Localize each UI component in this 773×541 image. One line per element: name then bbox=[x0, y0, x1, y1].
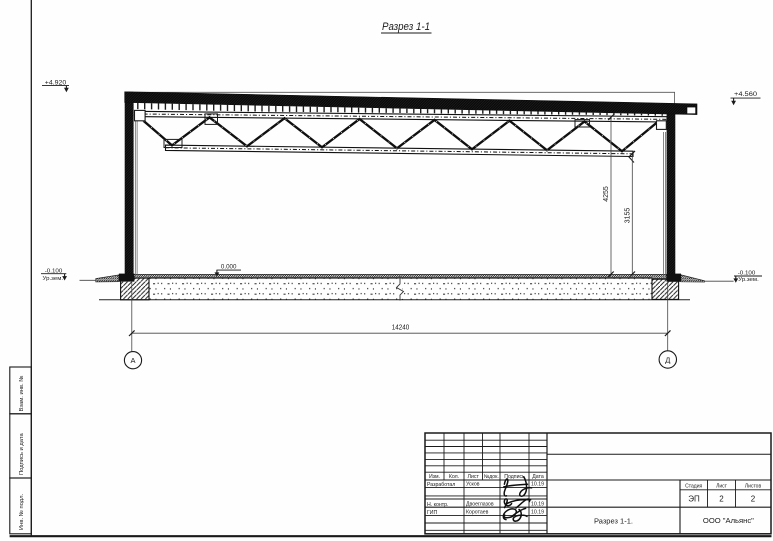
svg-text:10.19: 10.19 bbox=[531, 501, 544, 507]
svg-text:Разрез 1-1: Разрез 1-1 bbox=[382, 21, 430, 33]
svg-text:Изм.: Изм. bbox=[429, 474, 440, 480]
svg-text:Ур.зем.: Ур.зем. bbox=[738, 277, 759, 283]
svg-text:№док.: №док. bbox=[484, 474, 499, 480]
svg-text:Двоеглазов: Двоеглазов bbox=[466, 502, 494, 508]
svg-text:4255: 4255 bbox=[603, 186, 610, 202]
svg-text:2: 2 bbox=[751, 495, 756, 504]
svg-text:Инв. № подл.: Инв. № подл. bbox=[19, 494, 25, 530]
svg-text:10.19: 10.19 bbox=[531, 482, 544, 488]
svg-text:ООО "Альянс": ООО "Альянс" bbox=[703, 516, 754, 525]
svg-text:Взам. инв. №: Взам. инв. № bbox=[19, 376, 25, 412]
svg-text:Коротаев: Коротаев bbox=[466, 510, 489, 516]
svg-text:Разработал: Разработал bbox=[427, 482, 455, 488]
svg-text:2: 2 bbox=[719, 495, 724, 504]
svg-text:Кол.: Кол. bbox=[449, 474, 459, 480]
svg-text:Лист: Лист bbox=[468, 474, 480, 480]
svg-text:14240: 14240 bbox=[392, 325, 410, 332]
svg-text:Ур.зем.: Ур.зем. bbox=[43, 276, 64, 282]
svg-text:Усков: Усков bbox=[466, 482, 480, 488]
svg-text:10.19: 10.19 bbox=[531, 510, 544, 516]
svg-text:+4.560: +4.560 bbox=[734, 91, 758, 98]
svg-text:Лист: Лист bbox=[716, 484, 728, 490]
svg-text:0.000: 0.000 bbox=[221, 264, 237, 270]
svg-text:Листов: Листов bbox=[745, 484, 762, 490]
svg-text:Подпись и дата: Подпись и дата bbox=[19, 433, 25, 475]
svg-text:Разрез 1-1.: Разрез 1-1. bbox=[594, 516, 633, 525]
svg-text:ГИП: ГИП bbox=[427, 510, 438, 516]
svg-text:Дата: Дата bbox=[532, 474, 544, 480]
svg-text:Д: Д bbox=[665, 355, 670, 364]
svg-text:Стадия: Стадия bbox=[685, 484, 702, 490]
svg-text:3155: 3155 bbox=[624, 208, 631, 224]
svg-text:Н. контр.: Н. контр. bbox=[427, 502, 448, 508]
svg-text:ЭП: ЭП bbox=[688, 495, 700, 504]
svg-text:А: А bbox=[130, 356, 135, 365]
